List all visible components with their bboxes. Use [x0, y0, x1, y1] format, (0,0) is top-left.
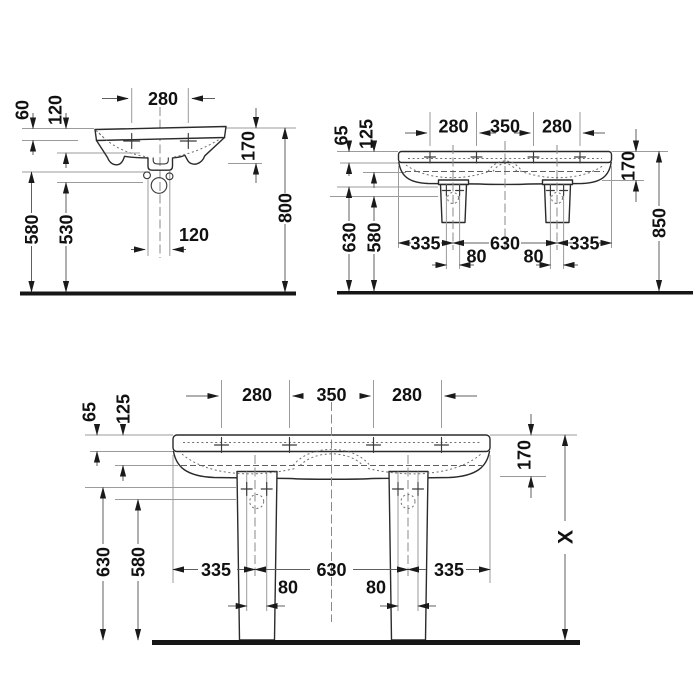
v1-basin-rim — [95, 127, 226, 141]
dim-label-v3-pipe-width-right: 80 — [366, 577, 386, 597]
dim-label-v2-trap-height: 580 — [364, 222, 384, 252]
dim-label-v3-rim-height: X — [554, 530, 577, 544]
dim-label-v1-outlet-height: 580 — [22, 214, 42, 244]
dim-label-v2-tap-right: 280 — [542, 116, 572, 136]
dim-label-v3-outlet-height: 630 — [93, 547, 113, 577]
dim-label-v2-pipe-width-right: 80 — [523, 246, 543, 266]
dim-label-v3-pipe-width-left: 80 — [278, 577, 298, 597]
dim-label-v3-rim-to-shelf: 65 — [79, 402, 99, 422]
dim-label-v3-edge-to-pedestal-left: 335 — [201, 560, 231, 580]
dim-label-v3-tap-center: 350 — [316, 385, 346, 405]
dim-label-v1-bolt-spacing: 120 — [179, 225, 209, 245]
dim-label-v2-rim-to-shelf: 65 — [331, 125, 351, 145]
v1-ground-line — [20, 292, 296, 296]
dim-label-v3-edge-to-pedestal-right: 335 — [434, 560, 464, 580]
dim-label-v3-trap-height: 580 — [128, 547, 148, 577]
v3-washbasin — [173, 402, 490, 640]
v2-ground-line — [337, 291, 693, 295]
dim-label-v3-basin-depth: 170 — [514, 440, 534, 470]
dim-label-v1-tap-spacing: 280 — [148, 89, 178, 109]
dim-label-v2-edge-to-pedestal-right: 335 — [569, 233, 599, 253]
dim-label-v3-tap-right: 280 — [392, 385, 422, 405]
technical-drawing: 280 60 120 170 580 530 800 120 — [0, 0, 700, 700]
view-single-washbasin: 280 60 120 170 580 530 800 120 — [12, 88, 296, 296]
dim-label-v2-rim-height: 850 — [649, 208, 669, 238]
v3-pedestal-left — [237, 472, 277, 641]
view-double-washbasin-half-pedestal: 280 350 280 65 125 170 630 580 850 335 6… — [330, 112, 693, 295]
dim-label-v2-edge-to-pedestal-left: 335 — [410, 233, 440, 253]
view-double-washbasin-full-pedestal: 280 350 280 65 125 170 630 580 X 335 630… — [79, 380, 580, 645]
dim-label-v2-tap-center: 350 — [490, 116, 520, 136]
v1-outlet-box — [153, 158, 168, 164]
dim-label-v1-rim-to-shelf: 60 — [12, 100, 32, 120]
v1-fixing-hole-left — [144, 172, 151, 179]
dim-label-v2-outlet-height: 630 — [339, 222, 359, 252]
dim-label-v3-rim-to-edge: 125 — [113, 394, 133, 424]
technical-drawing-page: 280 60 120 170 580 530 800 120 — [0, 0, 700, 700]
dim-label-v1-basin-depth: 170 — [238, 131, 258, 161]
dim-label-v1-rim-to-edge: 120 — [45, 95, 65, 125]
dim-label-v1-trap-height: 530 — [56, 214, 76, 244]
dim-label-v2-tap-left: 280 — [438, 116, 468, 136]
dim-label-v3-pedestal-spacing: 630 — [316, 560, 346, 580]
dim-label-v1-rim-height: 800 — [275, 193, 295, 223]
dim-label-v3-tap-left: 280 — [242, 385, 272, 405]
dim-label-v2-basin-depth: 170 — [618, 151, 638, 181]
dim-label-v2-pedestal-spacing: 630 — [490, 233, 520, 253]
v3-ground-line — [152, 640, 580, 645]
v1-waste-outlet — [151, 178, 167, 194]
dim-label-v2-rim-to-edge: 125 — [356, 119, 376, 149]
dim-label-v2-pipe-width-left: 80 — [466, 246, 486, 266]
